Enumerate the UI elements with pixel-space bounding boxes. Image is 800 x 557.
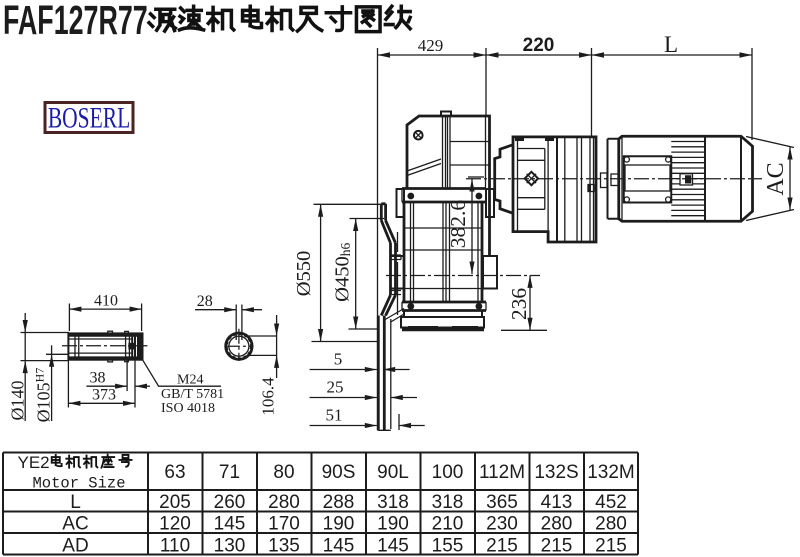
svg-text:38: 38 — [90, 370, 106, 387]
svg-text:132S: 132S — [534, 462, 578, 483]
svg-text:230: 230 — [486, 514, 518, 535]
svg-text:FAF127R77: FAF127R77 — [3, 0, 148, 43]
svg-text:429: 429 — [418, 36, 444, 55]
svg-text:BOSERL: BOSERL — [48, 101, 130, 134]
svg-text:132M: 132M — [587, 462, 635, 483]
svg-text:288: 288 — [323, 492, 355, 513]
svg-text:205: 205 — [159, 492, 191, 513]
svg-text:318: 318 — [432, 492, 464, 513]
svg-text:AC: AC — [62, 514, 88, 535]
svg-text:373: 373 — [92, 387, 116, 404]
svg-text:90S: 90S — [322, 462, 356, 483]
svg-text:170: 170 — [268, 514, 300, 535]
svg-text:190: 190 — [377, 514, 409, 535]
svg-text:145: 145 — [377, 536, 409, 557]
svg-text:Ø550: Ø550 — [293, 251, 315, 297]
svg-text:215: 215 — [595, 536, 627, 557]
svg-text:120: 120 — [159, 514, 191, 535]
svg-text:90L: 90L — [377, 462, 409, 483]
svg-text:Ø450h6: Ø450h6 — [332, 243, 354, 302]
svg-text:80: 80 — [273, 462, 294, 483]
svg-text:365: 365 — [486, 492, 518, 513]
svg-text:M24: M24 — [177, 373, 203, 388]
svg-text:215: 215 — [486, 536, 518, 557]
svg-text:236: 236 — [507, 288, 531, 321]
svg-text:382.6: 382.6 — [446, 200, 470, 249]
svg-text:413: 413 — [541, 492, 573, 513]
svg-text:ISO 4018: ISO 4018 — [161, 401, 215, 416]
svg-text:5: 5 — [334, 350, 343, 369]
svg-text:Motor Size: Motor Size — [32, 475, 125, 493]
svg-text:190: 190 — [323, 514, 355, 535]
svg-text:110: 110 — [160, 536, 190, 557]
svg-text:28: 28 — [197, 293, 213, 310]
svg-text:AD: AD — [62, 536, 88, 557]
svg-text:106.4: 106.4 — [259, 377, 278, 416]
svg-text:410: 410 — [94, 293, 118, 310]
svg-text:L: L — [70, 492, 81, 513]
svg-text:135: 135 — [268, 536, 300, 557]
svg-text:51: 51 — [326, 406, 343, 425]
svg-text:155: 155 — [432, 536, 464, 557]
svg-text:452: 452 — [595, 492, 627, 513]
svg-text:130: 130 — [214, 536, 246, 557]
svg-text:280: 280 — [541, 514, 573, 535]
svg-text:210: 210 — [432, 514, 464, 535]
svg-text:Ø105H7: Ø105H7 — [33, 368, 54, 423]
svg-text:100: 100 — [432, 462, 464, 483]
svg-text:GB/T 5781: GB/T 5781 — [161, 387, 224, 402]
svg-text:145: 145 — [214, 514, 246, 535]
svg-text:280: 280 — [268, 492, 300, 513]
svg-text:260: 260 — [214, 492, 246, 513]
svg-text:AC: AC — [763, 162, 789, 195]
svg-text:25: 25 — [327, 378, 344, 397]
svg-text:318: 318 — [377, 492, 409, 513]
svg-text:Ø140: Ø140 — [8, 381, 28, 421]
svg-text:112M: 112M — [479, 462, 525, 483]
svg-text:L: L — [664, 32, 678, 57]
svg-text:63: 63 — [164, 462, 185, 483]
svg-text:220: 220 — [523, 35, 555, 56]
svg-text:215: 215 — [541, 536, 573, 557]
svg-text:145: 145 — [323, 536, 355, 557]
svg-text:YE2: YE2 — [18, 453, 50, 472]
svg-text:280: 280 — [595, 514, 627, 535]
svg-text:71: 71 — [219, 462, 240, 483]
